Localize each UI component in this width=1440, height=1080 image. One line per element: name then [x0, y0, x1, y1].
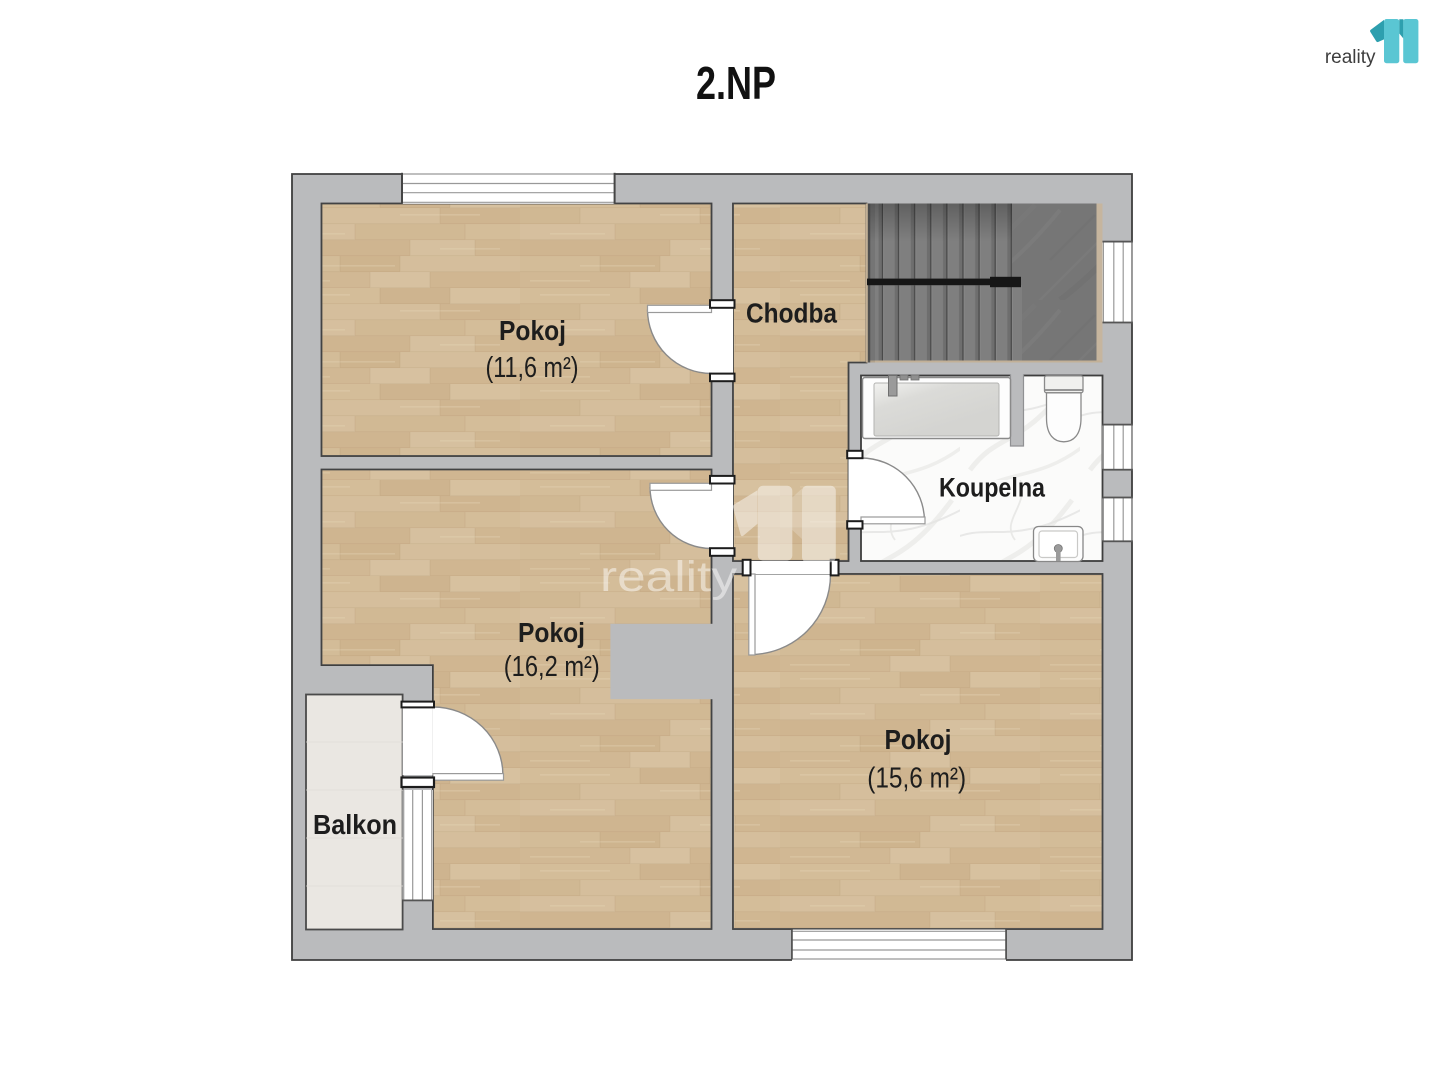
svg-text:reality: reality	[1325, 47, 1376, 68]
svg-text:Pokoj: Pokoj	[885, 724, 952, 755]
svg-text:Koupelna: Koupelna	[939, 473, 1046, 503]
svg-text:Pokoj: Pokoj	[499, 315, 566, 346]
svg-text:(11,6 m²): (11,6 m²)	[486, 352, 579, 384]
svg-text:Balkon: Balkon	[313, 809, 397, 840]
svg-text:2.NP: 2.NP	[696, 57, 776, 109]
svg-text:reality: reality	[600, 553, 738, 601]
svg-text:(16,2 m²): (16,2 m²)	[504, 651, 600, 683]
svg-text:Chodba: Chodba	[746, 298, 837, 329]
svg-text:(15,6 m²): (15,6 m²)	[867, 763, 966, 795]
svg-text:Pokoj: Pokoj	[518, 617, 585, 648]
